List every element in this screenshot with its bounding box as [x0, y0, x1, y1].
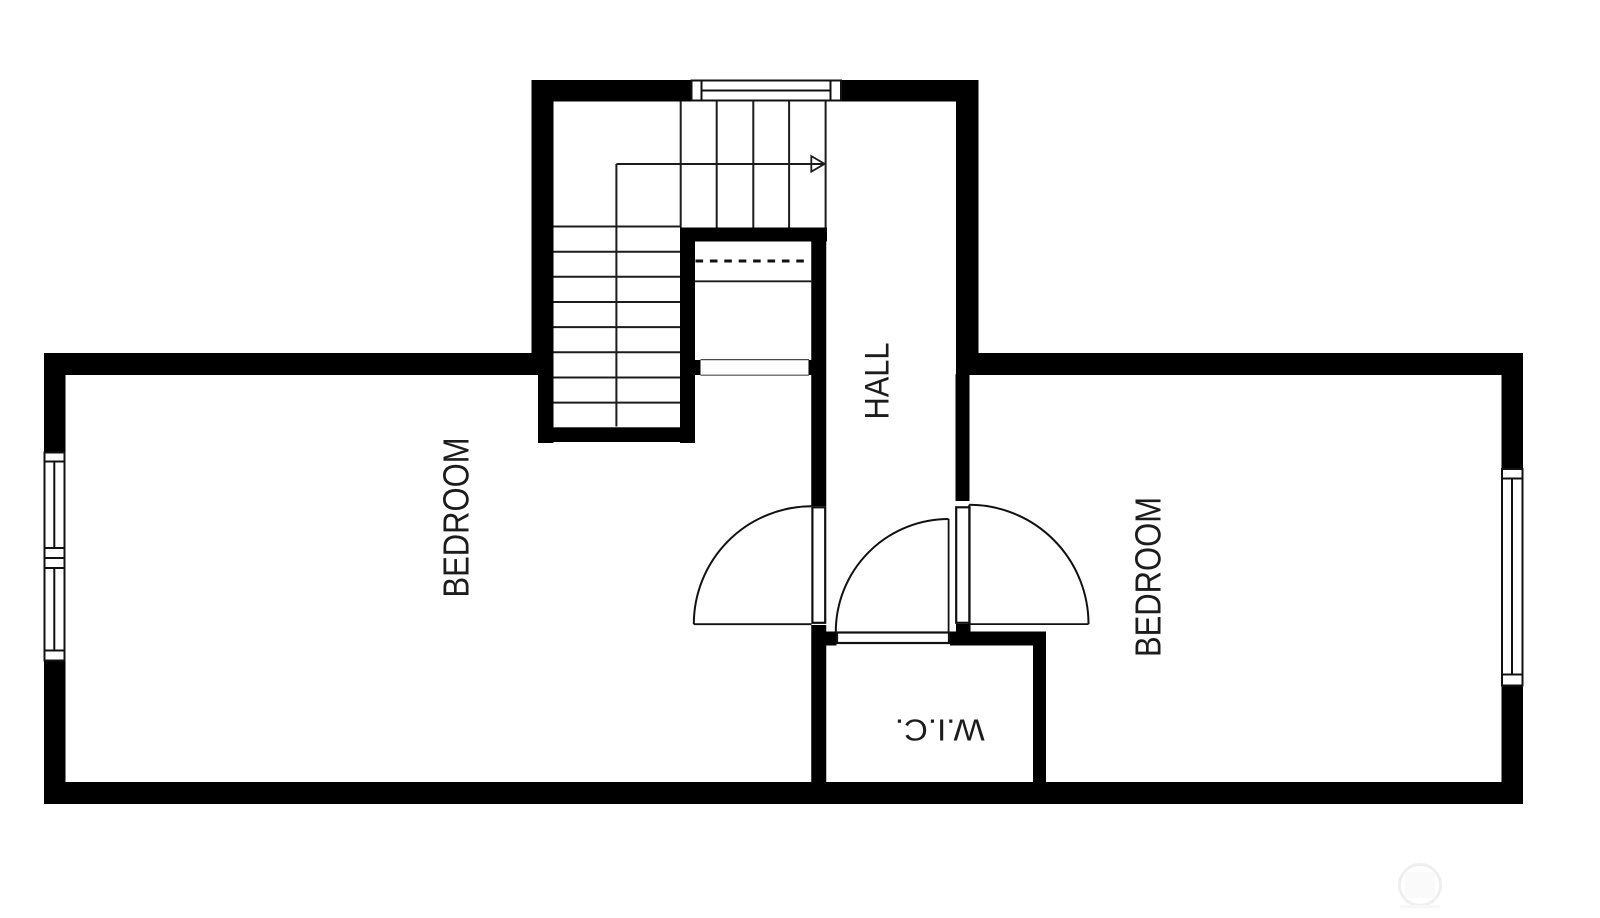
svg-text:BEDROOM: BEDROOM: [436, 438, 477, 598]
svg-text:W.I.C.: W.I.C.: [895, 713, 985, 748]
svg-text:BEDROOM: BEDROOM: [1128, 497, 1169, 657]
svg-text:HALL: HALL: [859, 343, 897, 420]
